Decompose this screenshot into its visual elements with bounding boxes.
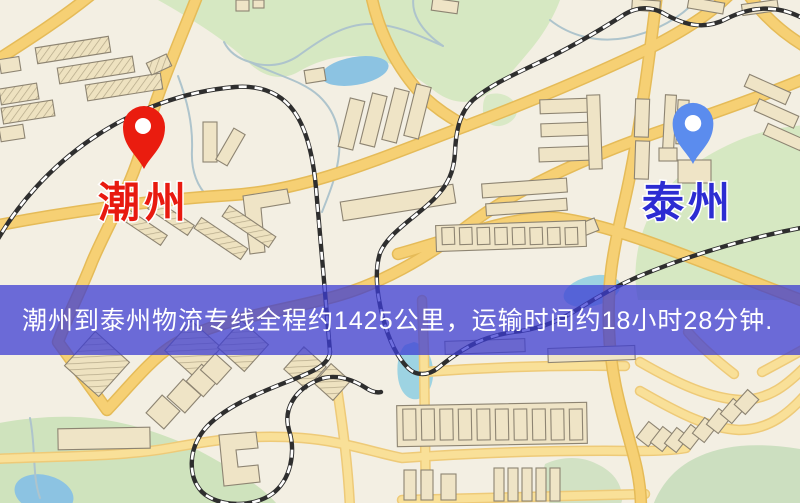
route-info-banner: 潮州到泰州物流专线全程约1425公里，运输时间约18小时28分钟.: [0, 285, 800, 355]
building: [495, 227, 508, 244]
building: [440, 409, 454, 440]
building: [236, 0, 249, 11]
destination-city-label: 泰州: [642, 179, 734, 226]
route-info-text: 潮州到泰州物流专线全程约1425公里，运输时间约18小时28分钟.: [22, 307, 773, 335]
building: [494, 468, 504, 501]
origin-city-label: 潮州: [98, 179, 190, 226]
building: [514, 409, 528, 440]
logistics-route-map: 潮州到泰州物流专线全程约1425公里，运输时间约18小时28分钟. 潮州 泰州: [0, 0, 800, 503]
building: [634, 141, 649, 179]
building: [522, 468, 532, 501]
building: [547, 227, 560, 244]
building: [403, 409, 417, 440]
building: [477, 227, 490, 244]
building: [508, 468, 518, 501]
building: [550, 468, 560, 501]
building: [0, 124, 25, 142]
building: [421, 409, 435, 440]
building: [530, 227, 543, 244]
building: [436, 220, 587, 251]
building: [477, 409, 491, 440]
building: [458, 409, 472, 440]
building: [634, 99, 649, 137]
building: [536, 468, 546, 501]
building: [659, 148, 677, 161]
building: [253, 0, 264, 8]
building: [404, 470, 416, 500]
building: [569, 409, 583, 440]
building: [441, 474, 456, 500]
building: [565, 227, 578, 244]
origin-pin-dot: [135, 118, 151, 134]
building: [442, 227, 455, 244]
building: [0, 57, 21, 74]
building: [495, 409, 509, 440]
building: [304, 68, 326, 84]
building: [203, 122, 217, 162]
building: [421, 470, 433, 500]
building: [459, 227, 472, 244]
building: [539, 146, 590, 162]
building: [512, 227, 525, 244]
building: [541, 122, 590, 137]
map-canvas: 潮州到泰州物流专线全程约1425公里，运输时间约18小时28分钟. 潮州 泰州: [0, 0, 800, 503]
building: [532, 409, 546, 440]
destination-pin-dot: [685, 115, 701, 131]
building: [551, 409, 565, 440]
building: [540, 98, 590, 114]
building: [587, 95, 603, 169]
building: [58, 427, 150, 450]
